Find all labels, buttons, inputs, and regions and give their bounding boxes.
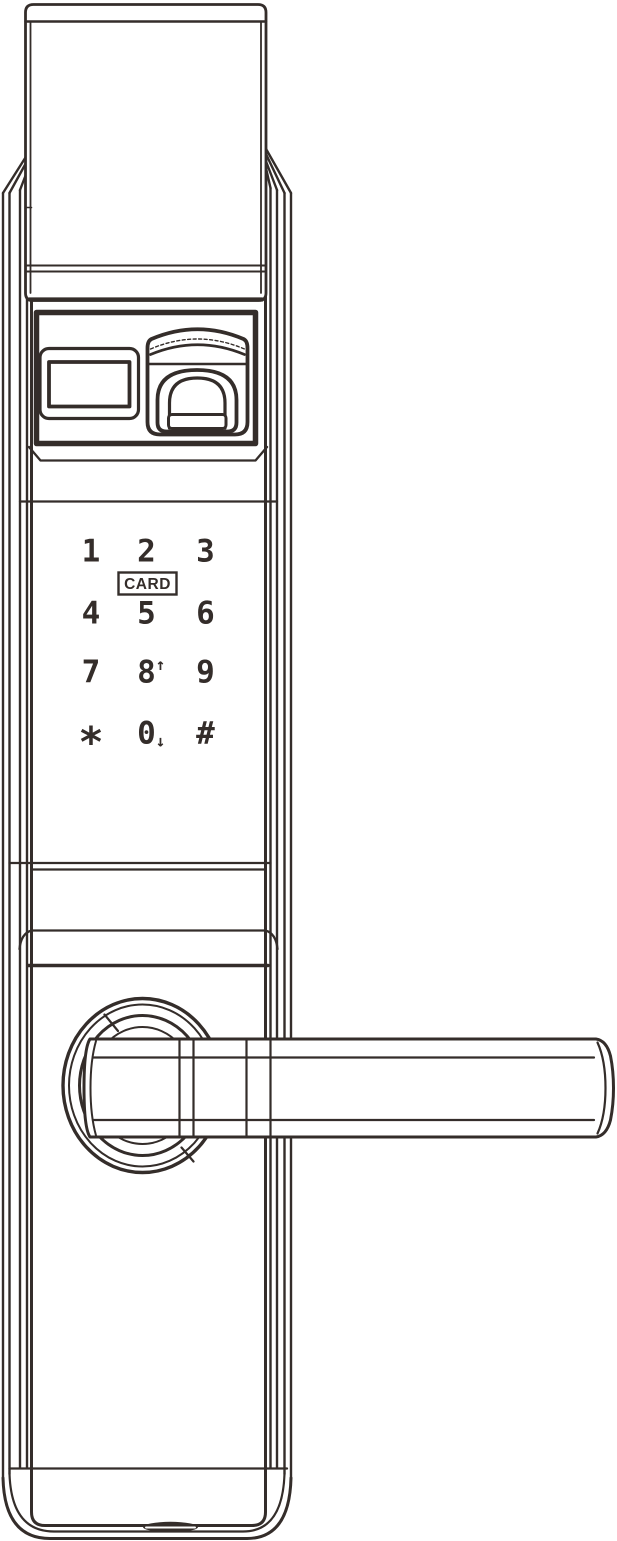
key-3[interactable]: 3 [196, 534, 215, 570]
key-8-up-arrow-icon: ↑ [156, 655, 166, 674]
fingerprint-sensor-cover[interactable] [169, 415, 227, 429]
fingerprint-scanner[interactable] [148, 329, 248, 434]
top-chamfer-right [266, 148, 292, 193]
side-edges-left [3, 188, 27, 1478]
side-edges-right [271, 188, 292, 1478]
key-0-down-arrow-icon: ↓ [156, 732, 166, 751]
bottom-edge-inner [10, 1474, 285, 1532]
card-reader[interactable]: CARD [119, 573, 177, 595]
battery-cover [26, 5, 267, 301]
fingerprint-band-arc [151, 345, 245, 355]
key-8[interactable]: 8 [137, 655, 156, 691]
lock-illustration: 1 2 3 4 5 6 7 8 ↑ 9 * 0 ↓ # CARD [0, 0, 617, 1541]
key-4[interactable]: 4 [82, 596, 101, 632]
key-star[interactable]: * [78, 718, 103, 767]
display-window [40, 349, 139, 419]
key-0[interactable]: 0 [137, 716, 156, 752]
key-9[interactable]: 9 [196, 655, 215, 691]
lock-drawing: 1 2 3 4 5 6 7 8 ↑ 9 * 0 ↓ # CARD [0, 0, 617, 1541]
keypad: 1 2 3 4 5 6 7 8 ↑ 9 * 0 ↓ # [78, 534, 215, 767]
key-hash[interactable]: # [196, 716, 215, 752]
key-6[interactable]: 6 [196, 596, 215, 632]
battery-cover-outline [26, 5, 267, 301]
key-2[interactable]: 2 [137, 534, 156, 570]
key-7[interactable]: 7 [82, 655, 101, 691]
door-handle[interactable] [84, 1039, 614, 1137]
handle-lever[interactable] [84, 1039, 614, 1137]
card-reader-label: CARD [124, 576, 171, 593]
display-window-inner-frame [49, 362, 130, 407]
key-1[interactable]: 1 [82, 534, 101, 570]
key-5[interactable]: 5 [137, 596, 156, 632]
